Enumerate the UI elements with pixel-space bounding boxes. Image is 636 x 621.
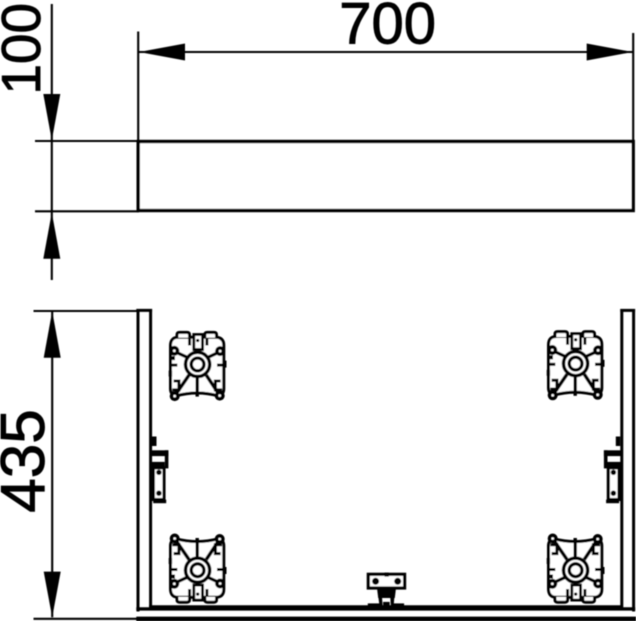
svg-text:700: 700 <box>339 0 436 57</box>
svg-text:435: 435 <box>0 409 58 512</box>
svg-text:100: 100 <box>0 3 52 95</box>
